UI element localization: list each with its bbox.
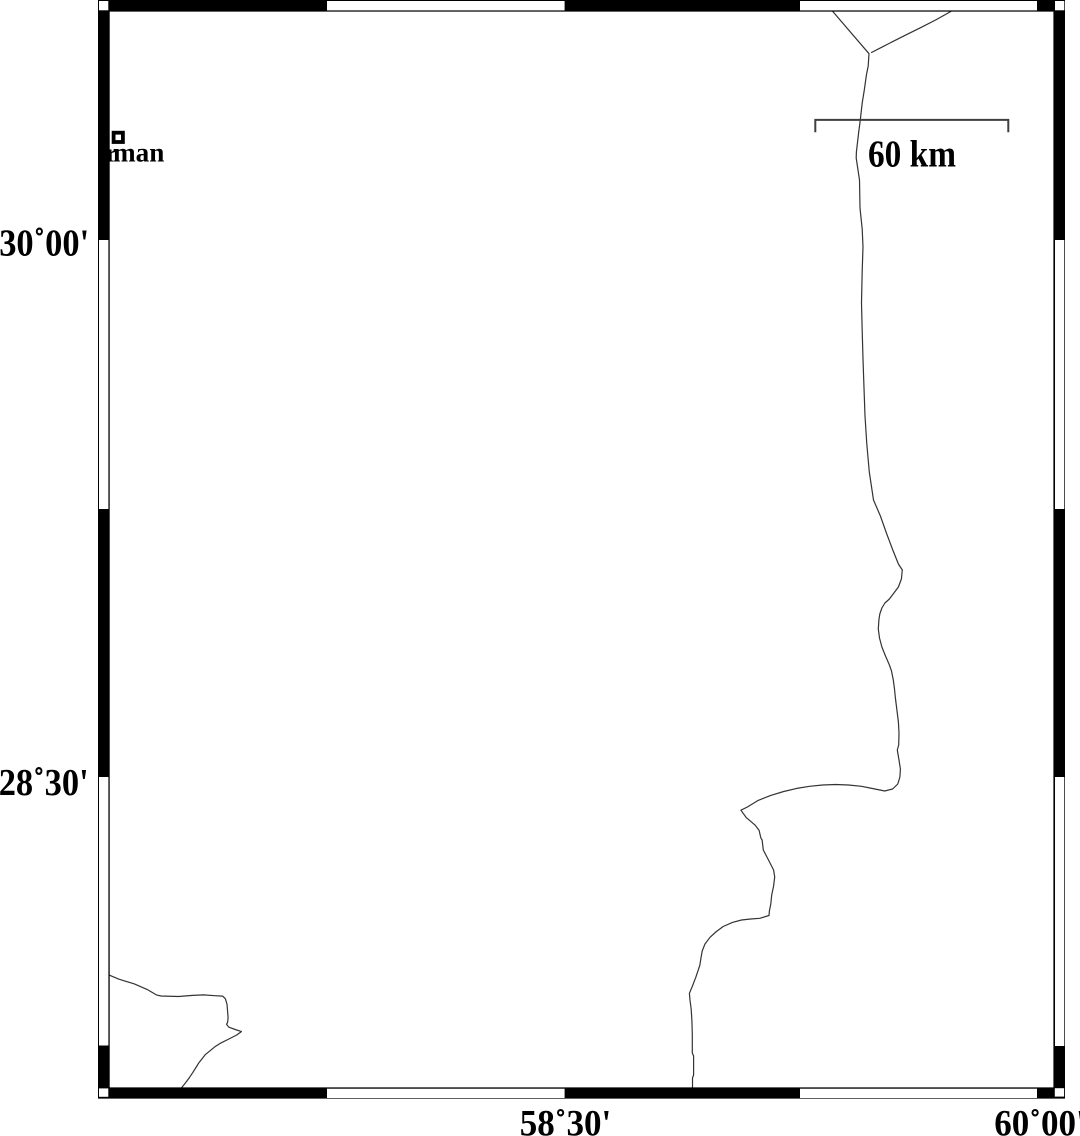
svg-text:30˚00': 30˚00' xyxy=(0,223,89,265)
svg-text:60˚00': 60˚00' xyxy=(994,1102,1080,1136)
svg-text:28˚30': 28˚30' xyxy=(0,762,89,804)
svg-text:58˚30': 58˚30' xyxy=(520,1102,612,1136)
svg-text:man: man xyxy=(113,138,164,168)
svg-text:60 km: 60 km xyxy=(868,133,956,175)
